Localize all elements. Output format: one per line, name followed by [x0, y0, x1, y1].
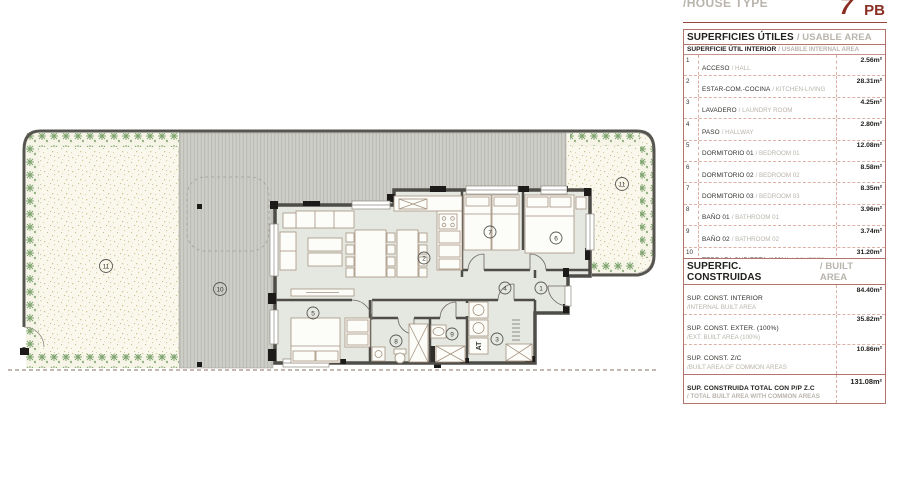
row-name: SUP. CONST. EXTER. (100%)/EXT. BUILT ARE… — [684, 315, 836, 344]
built-areas-table: SUPERFIC. CONSTRUIDAS / BUILT AREA SUP. … — [683, 258, 886, 404]
usable-area-row: 2 ESTAR-COM.-COCINA/ KITCHEN-LIVING 28.3… — [684, 76, 885, 97]
house-type-suffix: PB — [864, 2, 885, 19]
usable-areas-header: SUPERFICIES ÚTILES / USABLE AREA — [684, 30, 885, 45]
row-name: DORMITORIO 02/ BEDROOM 02 — [699, 162, 836, 182]
svg-text:8: 8 — [394, 338, 398, 345]
row-value: 12.08m² — [836, 141, 885, 161]
table-title-en: / BUILT AREA — [820, 261, 882, 283]
table-title-es: SUPERFIC. CONSTRUIDAS — [687, 261, 817, 283]
svg-text:9: 9 — [450, 331, 454, 338]
usable-area-row: 4 PASO/ HALLWAY 2.80m² — [684, 119, 885, 140]
usable-area-row: 1 ACCESO/ HALL 2.56m² — [684, 55, 885, 76]
svg-text:4: 4 — [503, 285, 507, 292]
plant-border — [36, 133, 179, 147]
svg-text:2: 2 — [422, 255, 426, 262]
plant-border — [26, 133, 39, 356]
plant-border — [570, 133, 640, 146]
garden-left — [26, 133, 179, 368]
header-divider — [683, 22, 887, 23]
row-value: 84.40m² — [836, 285, 885, 314]
usable-area-row: 5 DORMITORIO 01/ BEDROOM 01 12.08m² — [684, 141, 885, 162]
built-areas-header: SUPERFIC. CONSTRUIDAS / BUILT AREA — [684, 259, 885, 285]
row-value: 2.80m² — [836, 119, 885, 139]
row-number: 7 — [684, 183, 699, 203]
row-number: 8 — [684, 205, 699, 225]
table-title-es: SUPERFICIES ÚTILES — [687, 32, 794, 43]
svg-text:11: 11 — [103, 263, 110, 270]
svg-text:1: 1 — [539, 285, 543, 292]
usable-area-row: 8 BAÑO 01/ BATHROOM 01 3.96m² — [684, 205, 885, 226]
row-name: SUP. CONST. INTERIOR/INTERNAL BUILT AREA — [684, 285, 836, 314]
row-name: BAÑO 01/ BATHROOM 01 — [699, 205, 836, 225]
row-value: 3.74m² — [836, 226, 885, 246]
plant-border — [26, 354, 179, 368]
usable-area-row: 6 DORMITORIO 02/ BEDROOM 02 8.58m² — [684, 162, 885, 183]
row-number: 4 — [684, 119, 699, 139]
row-value: 28.31m² — [836, 76, 885, 96]
built-areas-total-row: SUP. CONSTRUIDA TOTAL CON P/P Z.C/ TOTAL… — [684, 374, 885, 404]
svg-text:3: 3 — [495, 336, 499, 343]
apartment: AT — [268, 186, 594, 367]
svg-text:7: 7 — [488, 229, 492, 236]
built-areas-rows: SUP. CONST. INTERIOR/INTERNAL BUILT AREA… — [684, 285, 885, 374]
house-type-number: 7 — [840, 0, 853, 21]
usable-area-row: 3 LAVADERO/ LAUNDRY ROOM 4.25m² — [684, 98, 885, 119]
row-name: BAÑO 02/ BATHROOM 02 — [699, 226, 836, 246]
row-number: 2 — [684, 76, 699, 96]
built-area-row: SUP. CONST. EXTER. (100%)/EXT. BUILT ARE… — [684, 315, 885, 345]
usable-areas-subheader: SUPERFICIE ÚTIL INTERIOR / USABLE INTERN… — [684, 45, 885, 55]
plant-border — [592, 260, 638, 273]
row-name: ESTAR-COM.-COCINA/ KITCHEN-LIVING — [699, 76, 836, 96]
row-name: PASO/ HALLWAY — [699, 119, 836, 139]
row-name: SUP. CONST. Z/C/BUILT AREA OF COMMON ARE… — [684, 345, 836, 374]
usable-area-row: 7 DORMITORIO 03/ BEDROOM 03 8.35m² — [684, 183, 885, 204]
row-number: 6 — [684, 162, 699, 182]
row-number: 1 — [684, 55, 699, 75]
tv-bench — [291, 289, 354, 296]
row-number: 5 — [684, 141, 699, 161]
row-name: ACCESO/ HALL — [699, 55, 836, 75]
usable-area-row: 9 BAÑO 02/ BATHROOM 02 3.74m² — [684, 226, 885, 247]
row-number: 3 — [684, 98, 699, 118]
row-name: LAVADERO/ LAUNDRY ROOM — [699, 98, 836, 118]
table-title-en: / USABLE AREA — [797, 32, 872, 43]
area-tables-panel: /HOUSE TYPE 7 PB SUPERFICIES ÚTILES / US… — [683, 0, 887, 500]
svg-text:10: 10 — [216, 286, 224, 293]
row-value: 3.96m² — [836, 205, 885, 225]
row-value: 8.58m² — [836, 162, 885, 182]
plant-border — [640, 146, 653, 258]
floorplan-page: AT 1 2 3 4 5 6 7 8 9 10 11 11 /HOUSE TYP… — [0, 0, 900, 500]
row-name: DORMITORIO 03/ BEDROOM 03 — [699, 183, 836, 203]
floor-plan: AT 1 2 3 4 5 6 7 8 9 10 11 11 — [0, 0, 680, 500]
row-name: DORMITORIO 01/ BEDROOM 01 — [699, 141, 836, 161]
row-value: 35.82m² — [836, 315, 885, 344]
row-value: 4.25m² — [836, 98, 885, 118]
built-area-row: SUP. CONST. INTERIOR/INTERNAL BUILT AREA… — [684, 285, 885, 315]
built-area-row: SUP. CONST. Z/C/BUILT AREA OF COMMON ARE… — [684, 345, 885, 374]
at-label: AT — [476, 341, 483, 351]
total-value: 131.08m² — [836, 375, 885, 404]
row-value: 2.56m² — [836, 55, 885, 75]
row-value: 8.35m² — [836, 183, 885, 203]
row-value: 10.86m² — [836, 345, 885, 374]
svg-text:11: 11 — [619, 181, 626, 188]
house-type-label: /HOUSE TYPE — [683, 0, 768, 10]
stove — [439, 214, 457, 229]
svg-text:5: 5 — [311, 310, 315, 317]
row-number: 9 — [684, 226, 699, 246]
svg-text:6: 6 — [554, 235, 558, 242]
